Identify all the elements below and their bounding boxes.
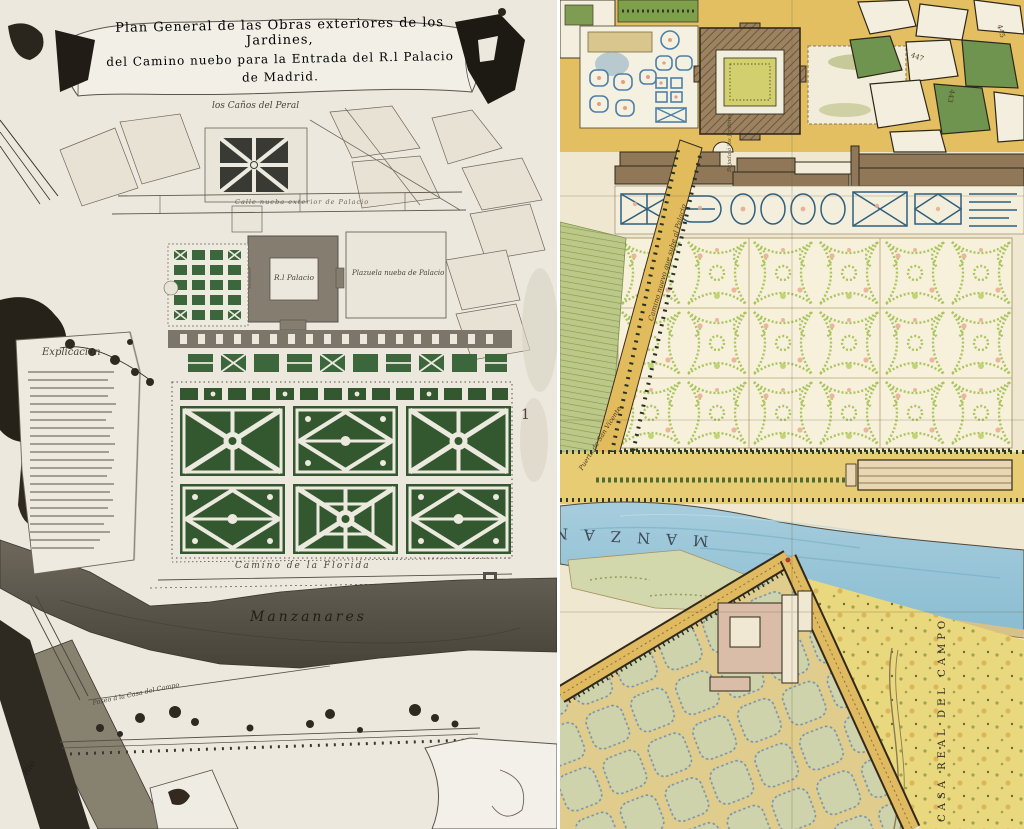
broderie-parterre [618,238,1012,458]
label-manzanares-left: Manzanares [250,610,367,624]
label-explicacion: Explicacion [42,348,101,358]
arcade-wall [168,330,512,348]
right-map-panel: Camino nuevo que sube al Palacio Puerta … [560,0,1024,829]
right-map-art [560,0,1024,829]
label-bajada-jardines: Bajada á los Jardines [728,113,734,172]
label-casa-real-del-campo: CASA REAL DEL CAMPO [938,617,948,822]
title-line-2: del Camino nuebo para la Entrada del R.l… [95,49,465,69]
palace-block [242,236,344,330]
explicacion-scroll [16,332,154,574]
royal-palace [694,23,806,140]
scanned-map-comparison: Plan General de las Obras exteriores de … [0,0,1024,829]
label-calle-nueva: Calle nueba exterior de Palacio [235,199,369,206]
left-map-panel: Plan General de las Obras exteriores de … [0,0,557,829]
great-parterre [172,382,512,558]
topleft-garden [560,0,698,128]
label-block-443: 443 [946,89,955,103]
label-marker-1: 1 [521,408,530,422]
label-canos-del-peral: los Caños del Peral [212,102,299,111]
label-plazuela: Plazuela nueba de Palacio [352,270,444,277]
left-map-art [0,0,557,829]
label-palacio: R.l Palacio [274,274,314,282]
court-garden [164,244,248,326]
map-title: Plan General de las Obras exteriores de … [94,15,465,87]
label-camino-florida: Camino de la Florida [235,562,371,571]
title-line-1: Plan General de las Obras exteriores de … [94,15,464,51]
